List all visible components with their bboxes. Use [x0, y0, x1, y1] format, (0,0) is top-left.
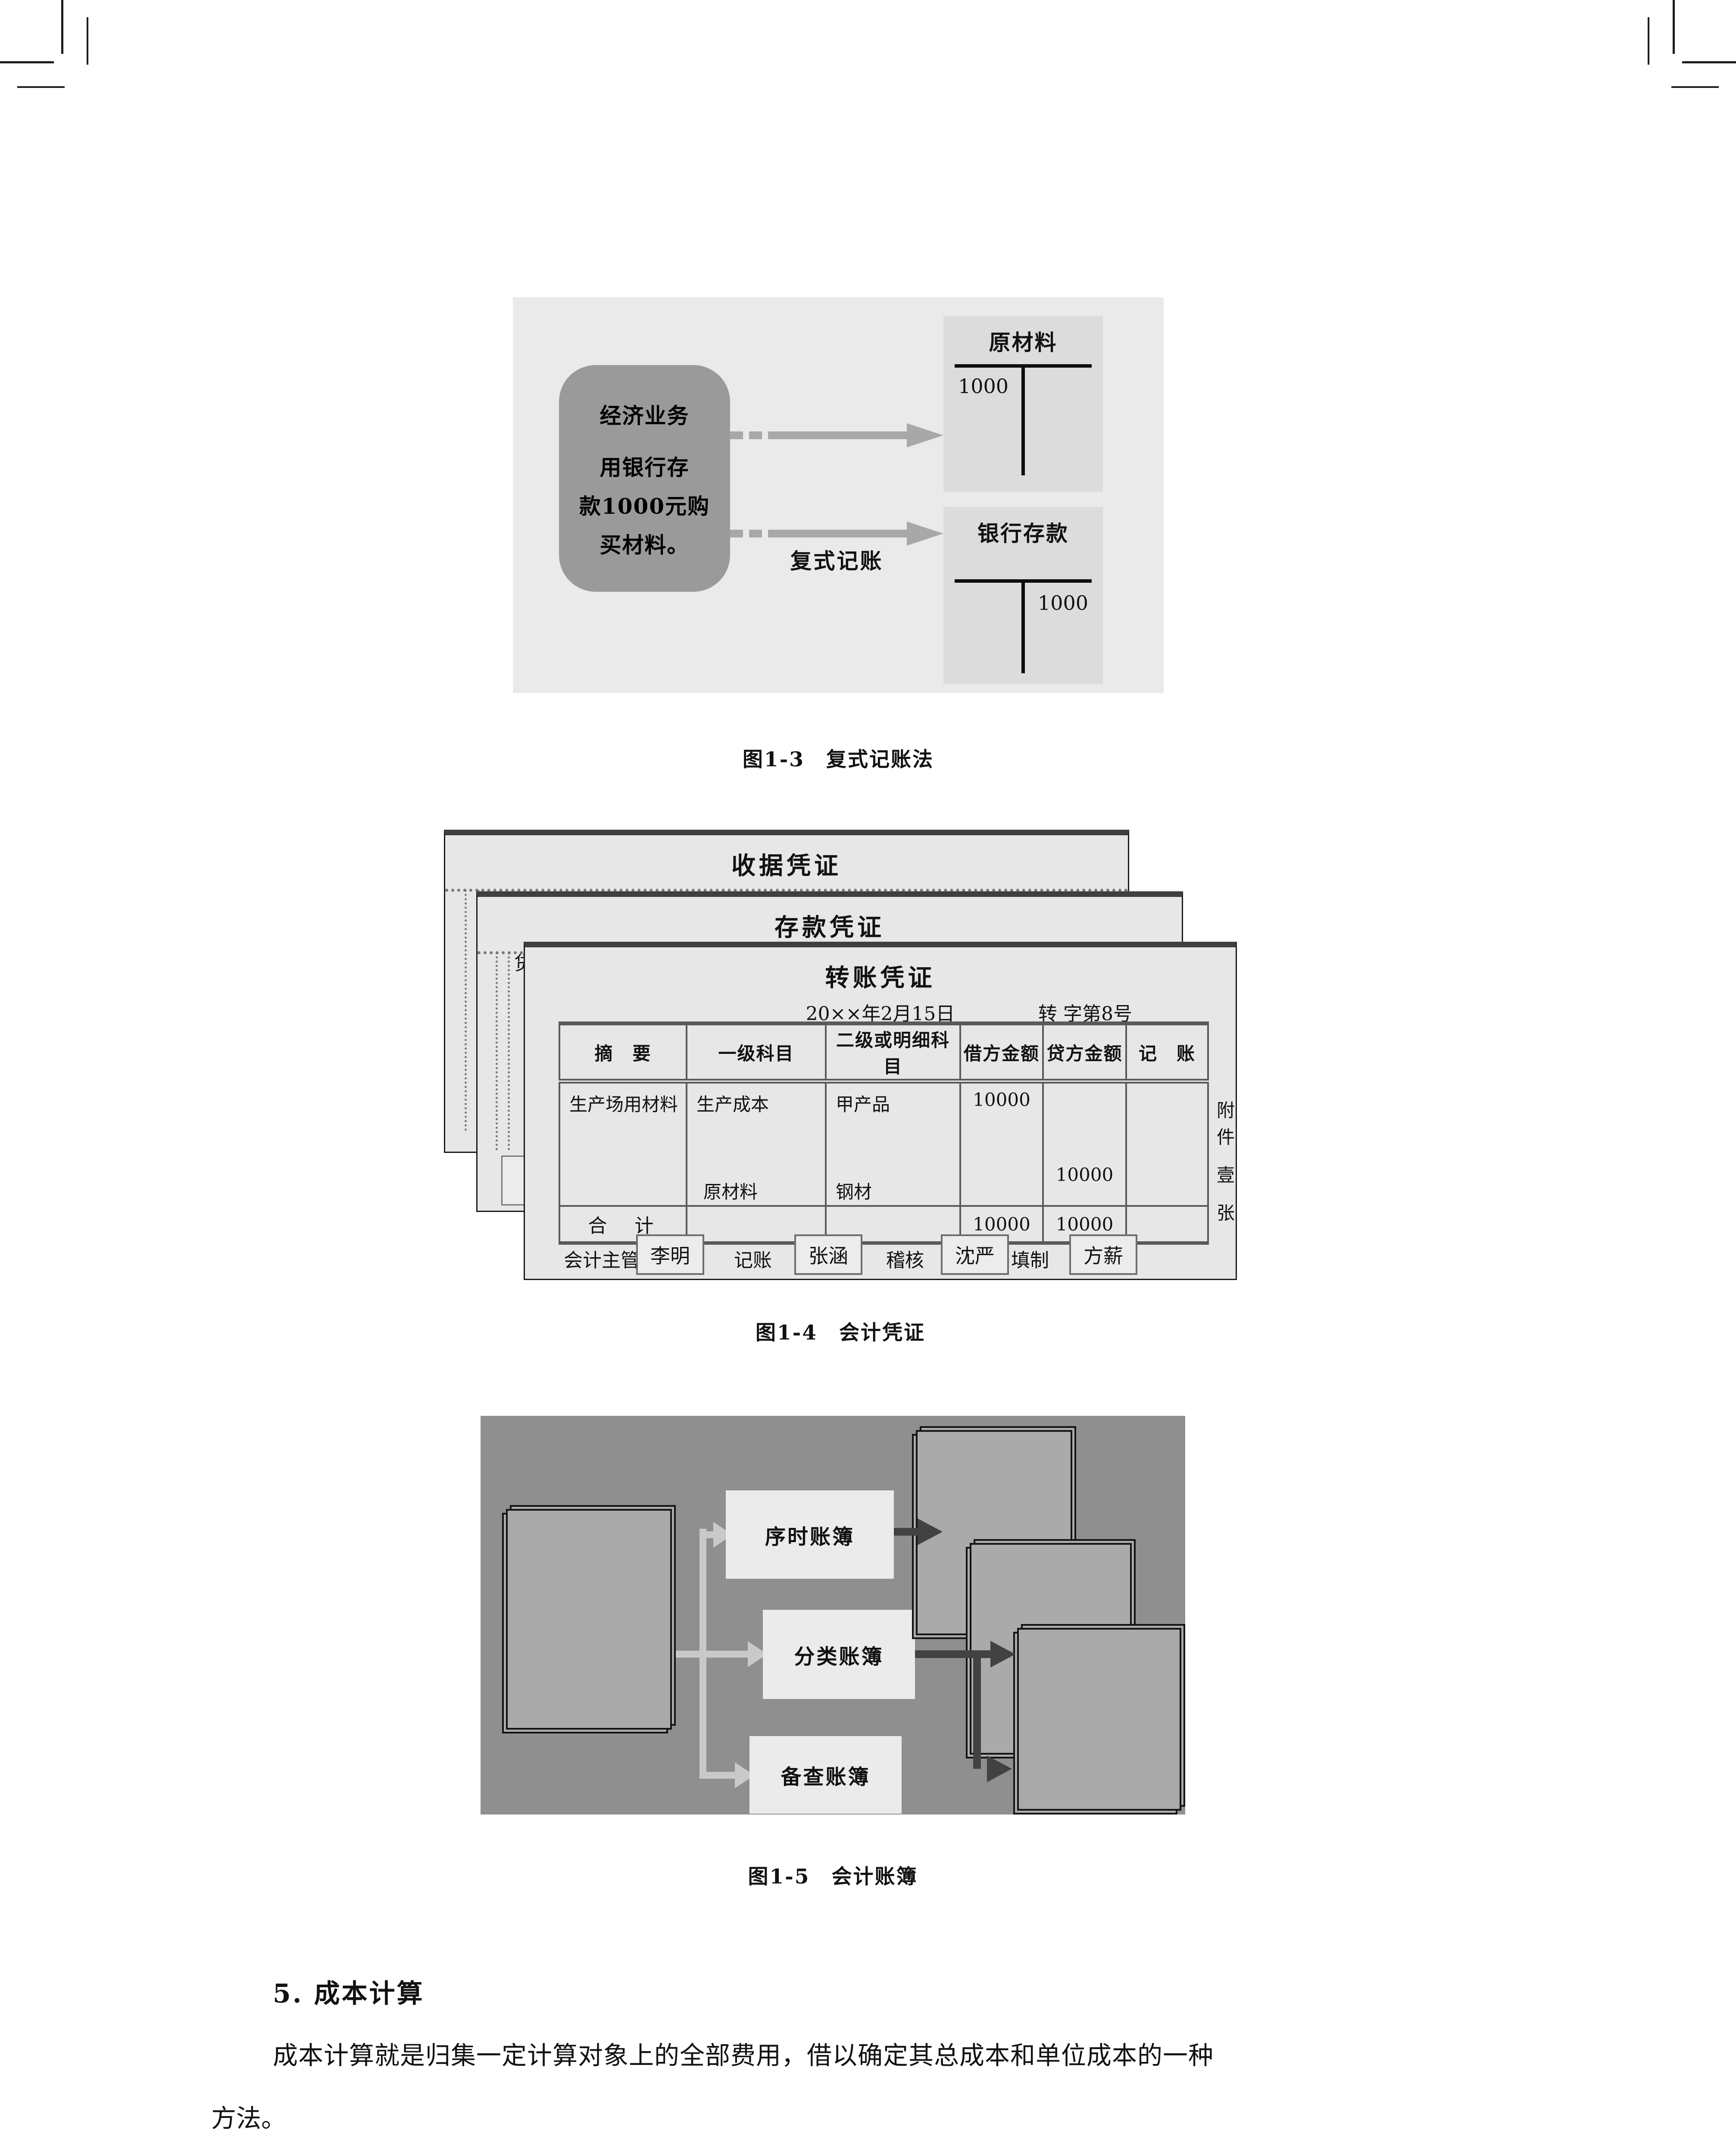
- category-box-classified: 分类账簿: [763, 1610, 915, 1699]
- figure-account-books-diagram: 账簿 序时账簿 分类账簿 备查账簿 日记账 总账 明细账: [481, 1416, 1185, 1815]
- signature-box: 沈严: [941, 1234, 1009, 1275]
- book-label: 总账: [1024, 1572, 1070, 1603]
- source-box-line: 用银行存: [559, 450, 730, 481]
- figure-double-entry-diagram: 经济业务 用银行存 款1000元购 买材料。 复式记账 原材料 1000 银行存…: [513, 297, 1164, 693]
- ledger-book: 账簿: [502, 1513, 668, 1733]
- connector-line: [699, 1651, 749, 1658]
- col-header-debit: 借方金额: [960, 1024, 1043, 1081]
- source-box-line: 款1000元购: [559, 489, 730, 520]
- voucher-title: 转账凭证: [525, 959, 1236, 993]
- arrow-right-icon: [990, 1641, 1015, 1668]
- crop-mark: [17, 86, 65, 88]
- signature-box: 方薪: [1069, 1234, 1137, 1275]
- book-label: 日记账: [955, 1466, 1025, 1497]
- book-label: 账簿: [562, 1608, 609, 1639]
- signature-role: 会计主管: [564, 1245, 640, 1272]
- arrow-right-icon: [987, 1755, 1012, 1782]
- t-account-title: 原材料: [943, 325, 1103, 356]
- connector-line: [699, 1772, 736, 1779]
- cell-summary: 生产场用材料: [561, 1084, 685, 1116]
- signature-role: 填制: [1011, 1245, 1049, 1272]
- col-header-level1: 一级科目: [687, 1024, 826, 1081]
- cell-level1-2: 原材料: [688, 1171, 824, 1204]
- hidden-table-line: [496, 952, 498, 1150]
- signature-role: 稽核: [886, 1245, 924, 1272]
- crop-mark: [1671, 86, 1719, 88]
- t-account-divider-line: [1021, 579, 1025, 673]
- connector-line: [973, 1650, 981, 1769]
- connector-line: [699, 1531, 714, 1538]
- arrow-label: 复式记账: [730, 544, 943, 575]
- col-header-detail: 二级或明细科目: [826, 1024, 960, 1081]
- attachment-note: 附 件 壹 张: [1215, 1097, 1237, 1227]
- hidden-table-line: [508, 952, 510, 1150]
- source-box-line: 经济业务: [559, 399, 730, 430]
- t-account-bank-deposit: 银行存款 1000: [943, 507, 1103, 684]
- credit-amount: 1000: [1038, 591, 1088, 615]
- debit-amount: 1000: [958, 375, 1009, 398]
- paragraph-line: 成本计算就是归集一定计算对象上的全部费用，借以确定其总成本和单位成本的一种: [273, 2035, 1214, 2071]
- section-heading: 5. 成本计算: [273, 1973, 425, 2010]
- t-account-title: 银行存款: [943, 516, 1103, 547]
- crop-mark: [1673, 0, 1675, 54]
- cell-detail: 甲产品: [827, 1084, 959, 1116]
- source-box-line: 买材料。: [559, 528, 730, 559]
- cell-level1: 生产成本: [688, 1084, 824, 1116]
- arrow-right-icon: [730, 522, 943, 546]
- table-header-row: 摘 要 一级科目 二级或明细科目 借方金额 贷方金额 记 账: [559, 1024, 1208, 1081]
- crop-mark: [87, 17, 88, 65]
- economic-business-box: 经济业务 用银行存 款1000元购 买材料。: [559, 365, 730, 592]
- crop-mark: [61, 0, 63, 54]
- transfer-voucher: 转账凭证 20××年2月15日 转 字第8号 摘 要 一级科目 二级或明细科目 …: [524, 942, 1237, 1280]
- table-body-row: 生产场用材料 生产成本 原材料 甲产品 钢材 10000 10000: [559, 1081, 1208, 1206]
- subsidiary-ledger-book: 明细账: [1013, 1632, 1177, 1815]
- figure-caption: 图1-3 复式记账法: [513, 743, 1164, 772]
- category-box-memorandum: 备查账簿: [749, 1736, 902, 1814]
- figure-caption: 图1-4 会计凭证: [444, 1316, 1237, 1346]
- signature-box: 李明: [636, 1234, 704, 1275]
- voucher-title: 收据凭证: [445, 846, 1128, 881]
- cell-debit: 10000: [962, 1084, 1042, 1110]
- col-header-summary: 摘 要: [559, 1024, 687, 1081]
- attachment-char: 件: [1217, 1124, 1235, 1151]
- voucher-title: 存款凭证: [478, 908, 1182, 943]
- col-header-posting: 记 账: [1126, 1024, 1208, 1081]
- arrow-right-icon: [730, 423, 943, 447]
- attachment-char: 张: [1217, 1200, 1235, 1227]
- arrow-right-icon: [918, 1518, 943, 1545]
- signature-role: 记账: [734, 1245, 772, 1272]
- attachment-char: 附: [1217, 1097, 1235, 1124]
- category-box-chronological: 序时账簿: [726, 1490, 894, 1579]
- connector-line: [894, 1528, 919, 1536]
- book-page: 经济业务 用银行存 款1000元购 买材料。 复式记账 原材料 1000 银行存…: [0, 0, 1736, 2155]
- crop-mark: [0, 61, 54, 63]
- figure-caption: 图1-5 会计账簿: [481, 1860, 1185, 1890]
- book-label: 明细账: [1061, 1670, 1130, 1701]
- attachment-char: 壹: [1217, 1162, 1235, 1189]
- hidden-table-line: [465, 890, 467, 1131]
- signature-box: 张涵: [794, 1234, 862, 1275]
- col-header-credit: 贷方金额: [1043, 1024, 1126, 1081]
- cell-credit: 10000: [1044, 1164, 1125, 1185]
- voucher-table: 摘 要 一级科目 二级或明细科目 借方金额 贷方金额 记 账 生产场用材料 生产…: [559, 1021, 1209, 1245]
- t-account-raw-materials: 原材料 1000: [943, 316, 1103, 492]
- cell-detail-2: 钢材: [827, 1171, 959, 1204]
- signature-row: 会计主管 李明 记账 张涵 稽核 沈严 填制 方薪: [525, 1232, 1236, 1279]
- crop-mark: [1648, 17, 1649, 65]
- paragraph-line: 方法。: [211, 2098, 286, 2134]
- crop-mark: [1682, 61, 1736, 63]
- t-account-divider-line: [1021, 364, 1025, 475]
